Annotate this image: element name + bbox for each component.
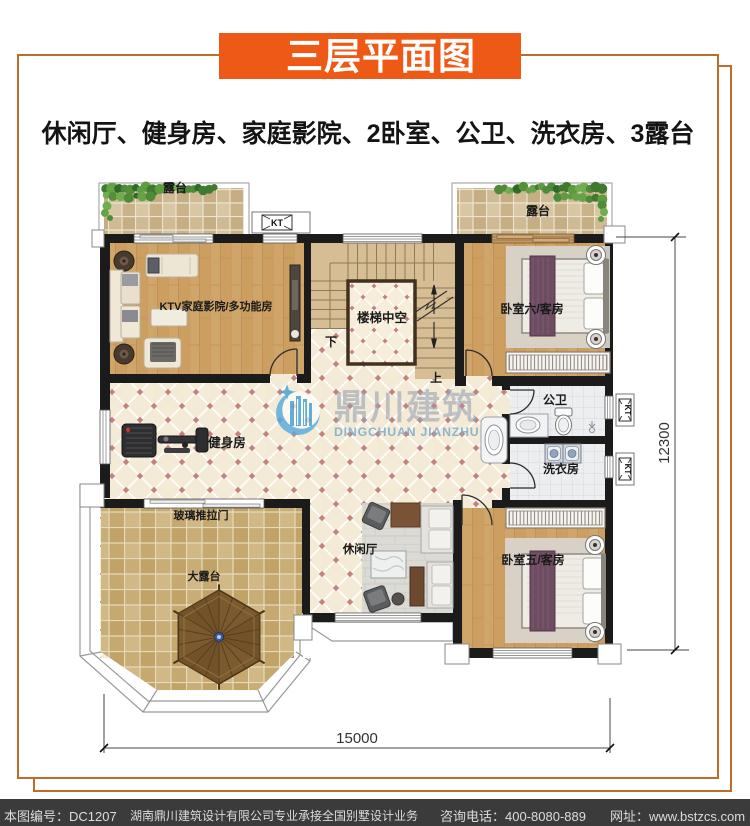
svg-text:KT: KT bbox=[623, 464, 632, 475]
svg-text:休闲厅: 休闲厅 bbox=[342, 542, 378, 556]
svg-text:露台: 露台 bbox=[526, 203, 550, 218]
svg-text:健身房: 健身房 bbox=[208, 435, 246, 450]
svg-text:12300: 12300 bbox=[656, 422, 673, 464]
svg-text:玻璃推拉门: 玻璃推拉门 bbox=[174, 508, 229, 522]
svg-text:下: 下 bbox=[325, 335, 337, 349]
svg-text:卧室六/客房: 卧室六/客房 bbox=[500, 301, 563, 316]
svg-text:15000: 15000 bbox=[336, 730, 378, 747]
svg-text:鼎川建筑: 鼎川建筑 bbox=[334, 389, 478, 427]
svg-text:DINGCHUAN JIANZHU: DINGCHUAN JIANZHU bbox=[334, 425, 479, 439]
svg-text:大露台: 大露台 bbox=[188, 569, 221, 583]
svg-text:KTV家庭影院/多功能房: KTV家庭影院/多功能房 bbox=[159, 299, 272, 313]
svg-text:KT: KT bbox=[271, 218, 283, 228]
svg-text:卧室五/客房: 卧室五/客房 bbox=[501, 552, 564, 567]
svg-text:楼梯中空: 楼梯中空 bbox=[357, 310, 407, 325]
svg-text:露台: 露台 bbox=[163, 180, 187, 195]
svg-text:公卫: 公卫 bbox=[543, 393, 567, 407]
svg-text:洗衣房: 洗衣房 bbox=[543, 461, 579, 476]
svg-text:KT: KT bbox=[623, 405, 632, 416]
svg-text:上: 上 bbox=[430, 370, 442, 385]
